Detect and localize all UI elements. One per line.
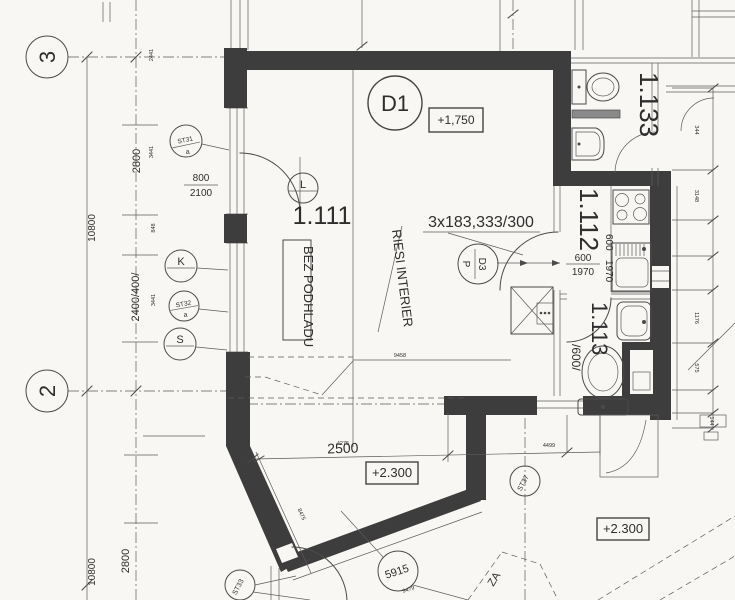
main-room: L D1 +1,750 1.111 BEZ PODHLADU 3x183,333… <box>240 70 540 447</box>
interior-note-label: RIESI INTERIER <box>389 229 416 328</box>
stove <box>613 190 649 224</box>
installation-shaft <box>511 287 553 334</box>
k-label: K <box>177 256 185 268</box>
bay-width-top-label: 4275 <box>337 441 349 447</box>
toilet-upper <box>572 70 619 104</box>
swing-arrow-2 <box>552 260 560 266</box>
door-height-label: 2100 <box>190 188 213 199</box>
kitchen-door-height-rot: 1970 <box>603 260 614 283</box>
level-main-label: +1,750 <box>437 113 474 127</box>
no-soffit-label: BEZ PODHLADU <box>301 246 316 347</box>
bathroom-upper: 1.133 <box>572 63 664 186</box>
st31-sub-label: a <box>185 148 190 156</box>
level-right-label: +2.300 <box>603 521 643 536</box>
right-dim-c: 1176 <box>693 312 699 324</box>
right-dimension-chain: 344 3148 1176 575 144 <box>672 84 718 432</box>
room-label-bath-lower: 1.113 <box>587 302 612 355</box>
dim-tick-a: 2441 <box>149 49 155 61</box>
threshold-detail-2 <box>704 432 718 440</box>
detail-marker-st33: ST33 <box>225 570 310 600</box>
kitchen-door-width: 600 <box>575 253 592 264</box>
grid-axis-2-label: 2 <box>35 385 60 397</box>
door-d3-arc <box>500 232 558 290</box>
st32-sub-label: a <box>183 312 188 320</box>
dim-overall-a: 10800 <box>87 214 98 242</box>
grid-axis-3: 3 <box>26 36 232 78</box>
za-label: ZA <box>486 570 504 589</box>
door-width-label: 800 <box>193 173 210 184</box>
door-d3-marker: D3 P <box>458 244 498 284</box>
kitchen-door-width-rot: 600 <box>603 234 614 251</box>
shelf <box>572 110 620 118</box>
detail-marker-st31: ST31 a <box>170 125 229 159</box>
sink-upper <box>572 128 604 160</box>
door-spec-800-2100: 800 2100 <box>184 173 218 199</box>
dim-span-mid: 2400/400/ <box>130 272 142 322</box>
radius-label: 5915 <box>384 563 411 582</box>
right-dim-d: 575 <box>693 363 699 372</box>
radius-sub-label: 9479 <box>402 585 416 594</box>
main-door-arc <box>240 153 300 213</box>
detail-marker-st37: ST37 <box>510 418 540 600</box>
door-d3-side-label: P <box>460 261 471 268</box>
drain-detail <box>600 415 658 477</box>
st37-label: ST37 <box>517 474 531 492</box>
dim-right-label: 4499 <box>543 443 555 449</box>
detail-marker-s: S <box>164 328 227 360</box>
right-dim-e: 144 <box>708 416 714 425</box>
dim-diag-label: 8475 <box>296 508 306 522</box>
room-label-kitchen: 1.112 <box>574 188 604 251</box>
kitchen-sink <box>612 243 651 291</box>
dim-span-b: 2800 <box>120 549 132 573</box>
shower-tray <box>617 302 651 340</box>
swing-arrow <box>520 260 528 266</box>
stair-note-label: 3x183,333/300 <box>428 214 534 231</box>
dim-tick-b: 3441 <box>149 146 155 158</box>
level-bay-label: +2.300 <box>372 465 412 480</box>
st32-label: ST32 <box>175 300 192 310</box>
zone-label-za: ZA <box>468 552 558 600</box>
floorplan-sheet: 10800 10800 2800 2400/400/ 2800 2441 344… <box>0 0 735 600</box>
dim-tick-c: 848 <box>151 223 157 232</box>
upper-structures <box>231 0 735 57</box>
room-label-living: 1.111 <box>293 202 352 230</box>
floorplan-canvas: 10800 10800 2800 2400/400/ 2800 2441 344… <box>0 0 735 600</box>
bath-upper-door-arc <box>615 132 656 173</box>
dim-tick-d: 3441 <box>151 294 157 306</box>
dim-span-a: 2800 <box>131 149 143 173</box>
right-dim-b: 3148 <box>693 190 699 202</box>
room-label-bath-upper: 1.133 <box>634 72 664 137</box>
door-d3-label: D3 <box>476 258 487 271</box>
dim-span-9458: 9458 <box>394 353 406 359</box>
dim-overall-b: 10800 <box>87 558 98 586</box>
detail-marker-st32: ST32 a <box>169 291 228 321</box>
detail-marker-k: K <box>165 250 228 282</box>
s-label: S <box>176 334 183 346</box>
door-type-label: L <box>300 179 306 191</box>
st33-label: ST33 <box>232 578 246 596</box>
bath-lower-dim: /600/ <box>569 344 583 371</box>
kitchen-door-height: 1970 <box>572 267 595 278</box>
door-d1-label: D1 <box>381 91 409 116</box>
grid-axis-3-label: 3 <box>35 51 60 63</box>
right-dim-a: 344 <box>693 125 699 134</box>
